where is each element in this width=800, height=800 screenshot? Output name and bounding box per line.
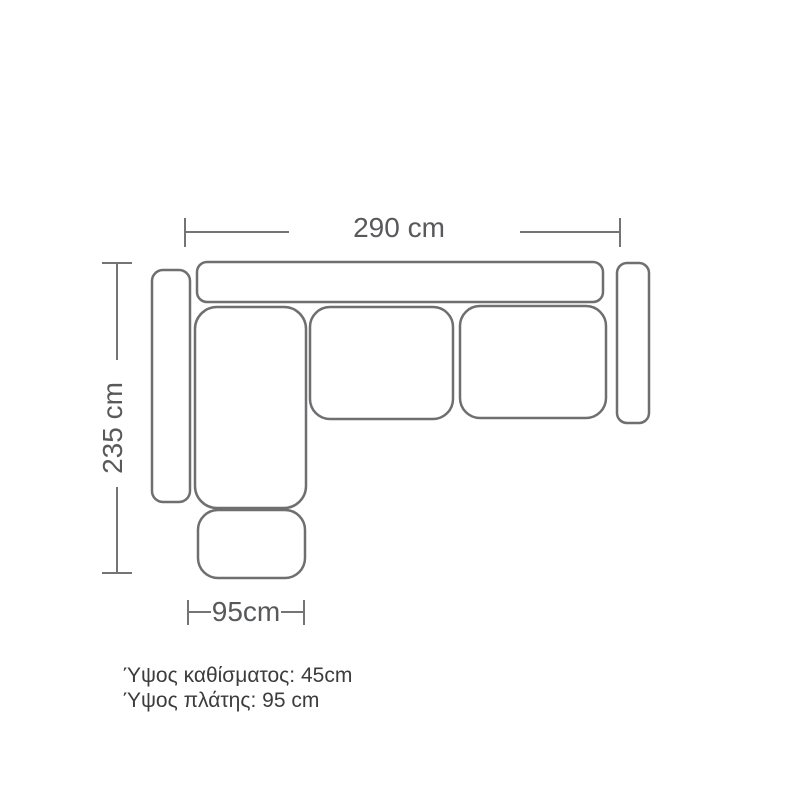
right-seat-cushion-outline: [460, 306, 606, 418]
chaise-width-dimension: 95cm: [188, 596, 304, 627]
left-armrest-outline: [152, 270, 190, 502]
ottoman-outline: [198, 510, 305, 578]
note-seat-height: Ύψος καθίσματος: 45cm: [123, 664, 352, 687]
backrest-outline: [197, 262, 603, 302]
middle-seat-cushion-outline: [310, 307, 453, 419]
notes: Ύψος καθίσματος: 45cm Ύψος πλάτης: 95 cm: [123, 664, 352, 712]
width-dim-label: 290 cm: [353, 212, 445, 243]
diagram-canvas: 290 cm 235 cm 95cm: [0, 0, 800, 800]
width-dimension: 290 cm: [185, 212, 620, 247]
sofa-outline: [152, 262, 649, 578]
chaise-seat-outline: [195, 307, 306, 508]
sofa-dimension-diagram: 290 cm 235 cm 95cm: [0, 0, 800, 800]
depth-dimension: 235 cm: [97, 263, 132, 573]
right-armrest-outline: [617, 263, 649, 423]
chaise-dim-label: 95cm: [212, 596, 280, 627]
depth-dim-label: 235 cm: [97, 382, 128, 474]
note-back-height: Ύψος πλάτης: 95 cm: [123, 689, 319, 712]
